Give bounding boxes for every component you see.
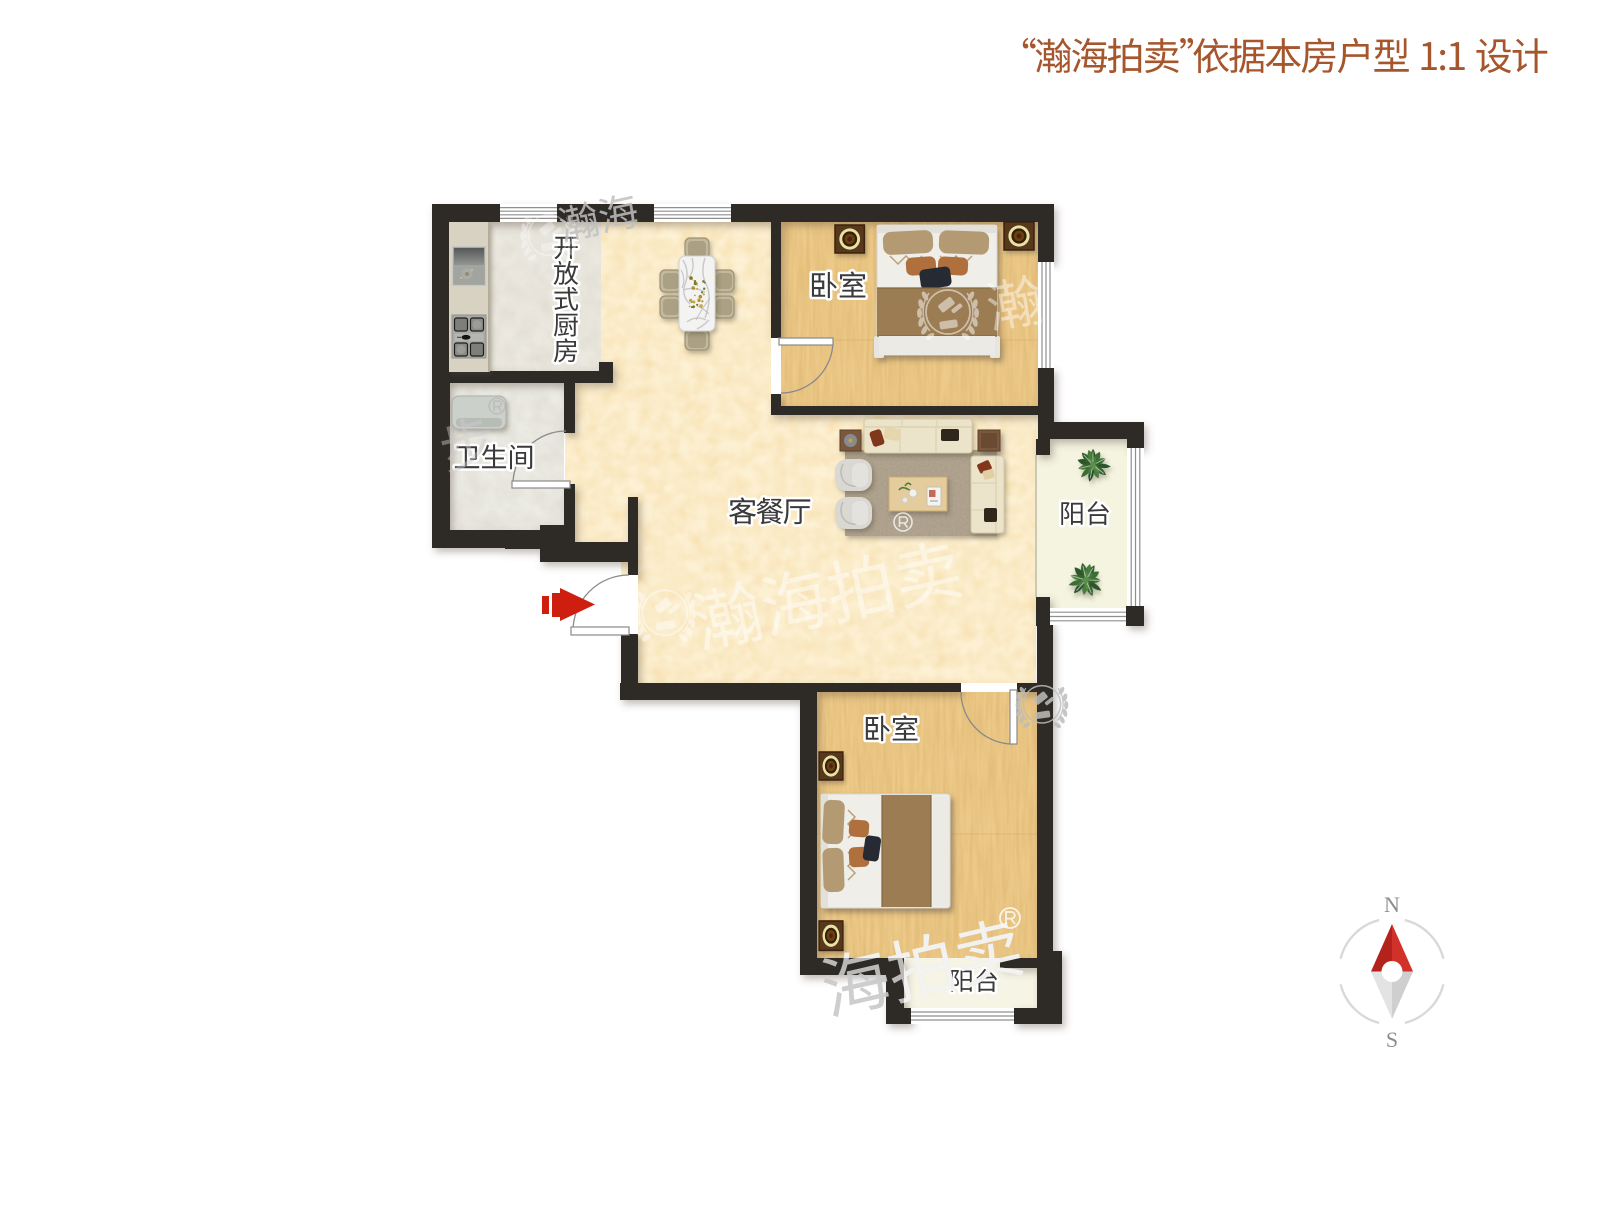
svg-text:N: N: [1384, 892, 1400, 917]
svg-text:S: S: [1386, 1027, 1398, 1052]
